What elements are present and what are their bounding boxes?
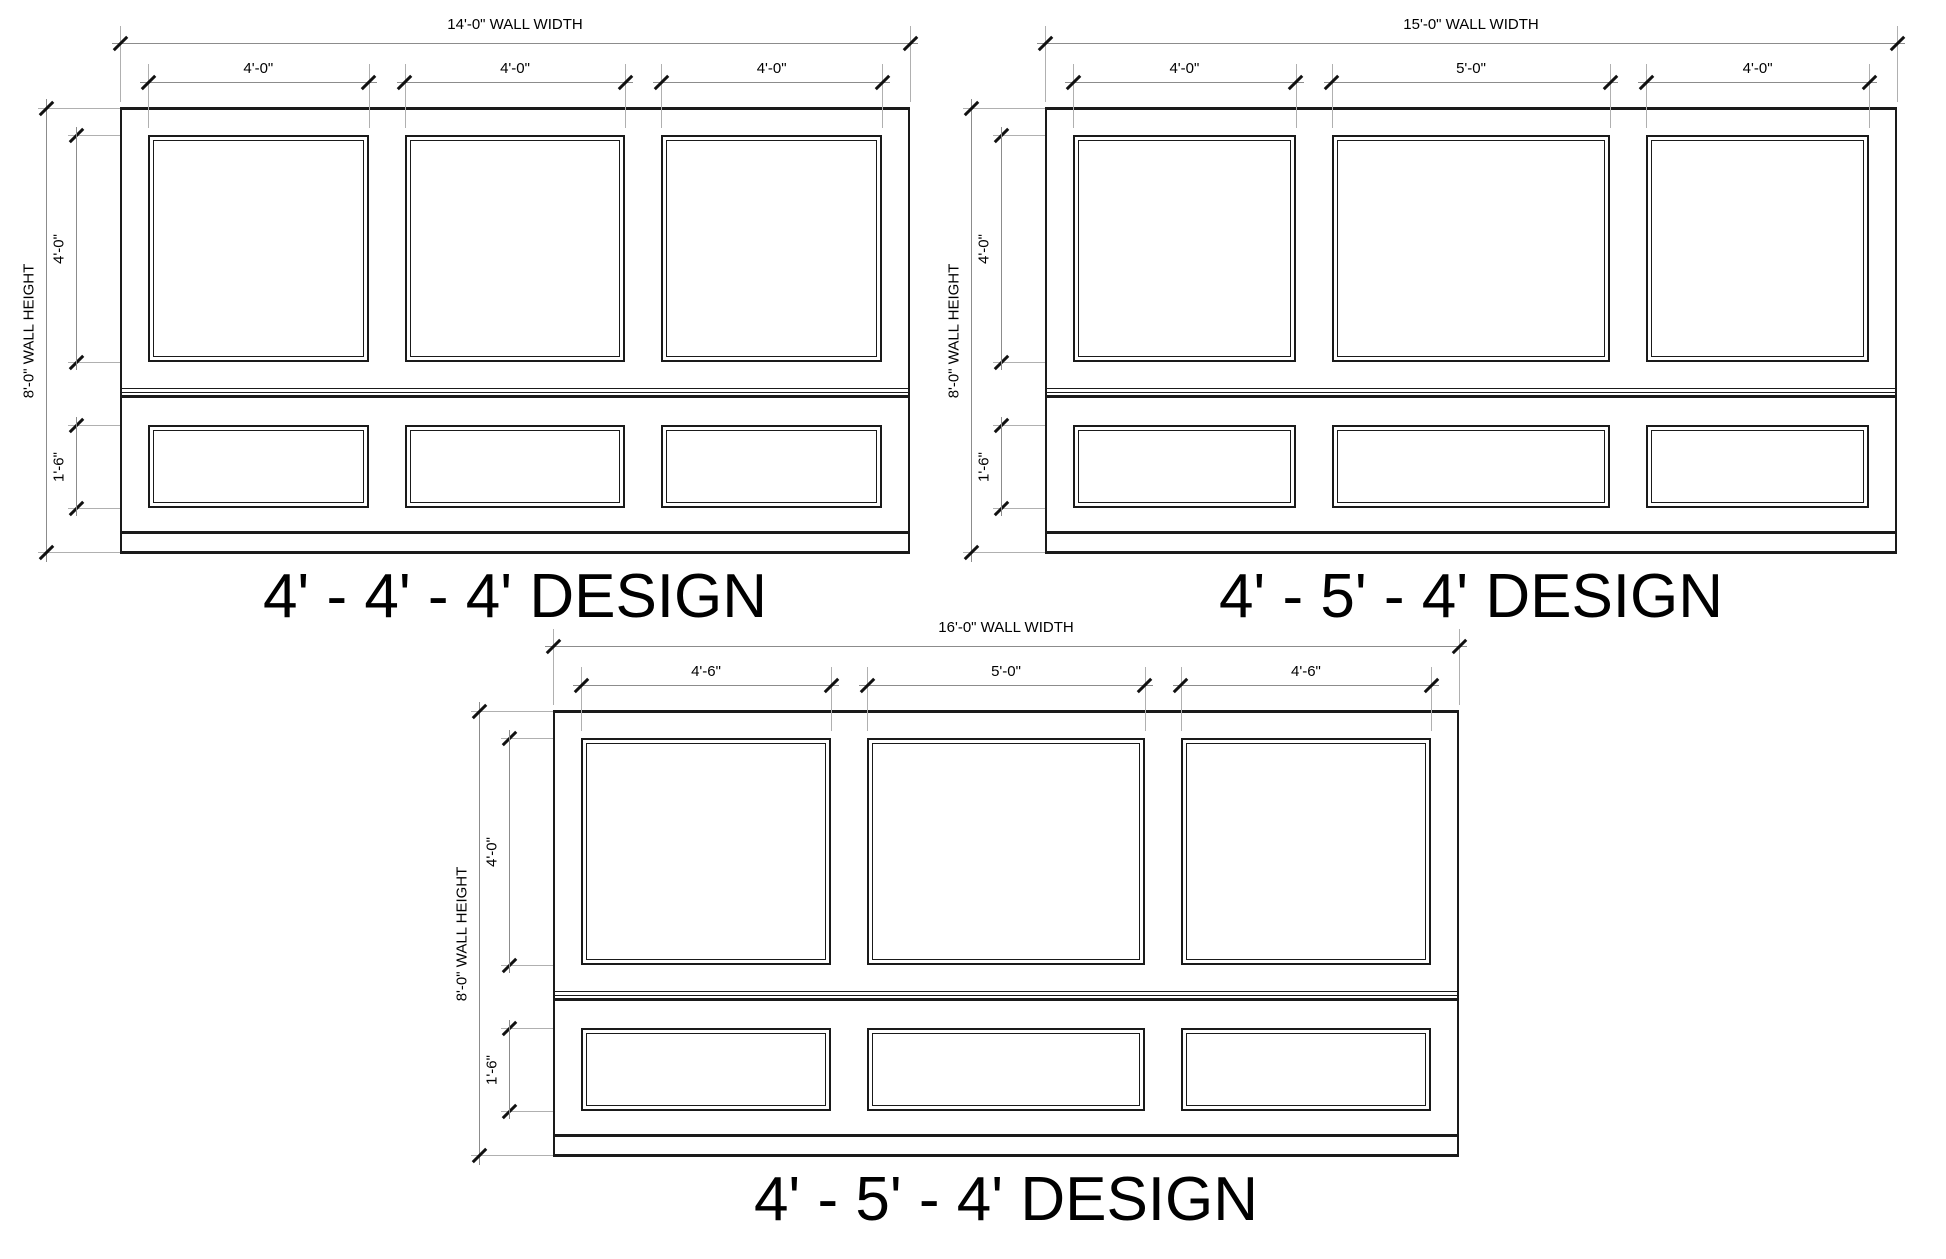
panel-dim-extension-line bbox=[148, 64, 149, 128]
upper-panel-1 bbox=[1073, 135, 1296, 362]
lower-panel-inner-frame bbox=[586, 1033, 826, 1106]
wall-height-dim-label: 8'-0" WALL HEIGHT bbox=[22, 263, 37, 398]
wall-height-dim-label: 8'-0" WALL HEIGHT bbox=[455, 866, 470, 1001]
lower-panel-height-dim-label: 1'-6" bbox=[52, 452, 67, 482]
wall-width-dim-label: 16'-0" WALL WIDTH bbox=[938, 619, 1073, 636]
lower-panel-1 bbox=[1073, 425, 1296, 508]
overall-dim-extension-line bbox=[1459, 629, 1460, 705]
overall-dim-extension-line bbox=[1897, 26, 1898, 102]
upper-panel-1 bbox=[148, 135, 369, 362]
wall-height-extension-line bbox=[963, 552, 1045, 553]
panel-width-dim-line bbox=[140, 82, 377, 83]
chair-rail-line bbox=[1047, 395, 1895, 398]
lower-panel-3 bbox=[661, 425, 882, 508]
panel-dim-extension-line bbox=[1646, 64, 1647, 128]
lower-panel-2 bbox=[405, 425, 626, 508]
panel-width-dim-label: 4'-0" bbox=[1169, 60, 1199, 77]
upper-panel-2 bbox=[1332, 135, 1610, 362]
upper-panel-inner-frame bbox=[1337, 140, 1605, 357]
baseboard-cap-line bbox=[555, 1134, 1457, 1137]
chair-rail-line bbox=[1047, 392, 1895, 393]
panel-dim-extension-line bbox=[867, 667, 868, 731]
overall-dim-extension-line bbox=[1045, 26, 1046, 102]
panel-dim-extension-line bbox=[1073, 64, 1074, 128]
lower-panel-height-dim-line bbox=[1001, 417, 1002, 516]
panel-dim-extension-line bbox=[581, 667, 582, 731]
upper-panel-2 bbox=[867, 738, 1145, 965]
panel-width-dim-label: 4'-0" bbox=[243, 60, 273, 77]
lower-panel-3 bbox=[1646, 425, 1869, 508]
panel-dim-extension-line bbox=[1181, 667, 1182, 731]
panel-dim-extension-line bbox=[1869, 64, 1870, 128]
overall-dim-extension-line bbox=[553, 629, 554, 705]
upper-panel-inner-frame bbox=[872, 743, 1140, 960]
upper-panel-3 bbox=[1646, 135, 1869, 362]
lower-panel-inner-frame bbox=[1186, 1033, 1426, 1106]
upper-panel-inner-frame bbox=[153, 140, 364, 357]
overall-dim-extension-line bbox=[910, 26, 911, 102]
upper-panel-3 bbox=[661, 135, 882, 362]
lower-panel-2 bbox=[867, 1028, 1145, 1111]
wall-height-dim-line bbox=[971, 99, 972, 562]
panel-width-dim-label: 4'-0" bbox=[1743, 60, 1773, 77]
panel-width-dim-line bbox=[859, 685, 1153, 686]
panel-width-dim-label: 4'-6" bbox=[1291, 663, 1321, 680]
panel-width-dim-label: 4'-0" bbox=[500, 60, 530, 77]
wall-width-dim-line bbox=[545, 646, 1467, 647]
upper-panel-2 bbox=[405, 135, 626, 362]
panel-width-dim-line bbox=[397, 82, 634, 83]
lower-panel-inner-frame bbox=[1651, 430, 1864, 503]
upper-panel-inner-frame bbox=[410, 140, 621, 357]
lower-panel-height-dim-line bbox=[76, 417, 77, 516]
lower-panel-inner-frame bbox=[1078, 430, 1291, 503]
lower-panel-height-dim-label: 1'-6" bbox=[977, 452, 992, 482]
wall-height-dim-line bbox=[479, 702, 480, 1165]
lower-panel-inner-frame bbox=[153, 430, 364, 503]
wall-width-dim-line bbox=[1037, 43, 1905, 44]
panel-dim-extension-line bbox=[1610, 64, 1611, 128]
panel-dim-extension-line bbox=[369, 64, 370, 128]
upper-panel-height-dim-label: 4'-0" bbox=[485, 837, 500, 867]
baseboard-cap-line bbox=[1047, 531, 1895, 534]
drawing-title: 4' - 5' - 4' DESIGN bbox=[754, 1169, 1258, 1231]
lower-panel-3 bbox=[1181, 1028, 1431, 1111]
panel-dim-extension-line bbox=[882, 64, 883, 128]
panel-dim-extension-line bbox=[1296, 64, 1297, 128]
upper-panel-inner-frame bbox=[1651, 140, 1864, 357]
upper-panel-1 bbox=[581, 738, 831, 965]
wall-height-extension-line bbox=[471, 711, 553, 712]
upper-panel-height-dim-label: 4'-0" bbox=[52, 234, 67, 264]
wall-height-extension-line bbox=[38, 552, 120, 553]
baseboard-cap-line bbox=[122, 531, 908, 534]
upper-panel-height-dim-label: 4'-0" bbox=[977, 234, 992, 264]
upper-panel-height-dim-line bbox=[509, 730, 510, 973]
panel-width-dim-label: 5'-0" bbox=[991, 663, 1021, 680]
lower-panel-inner-frame bbox=[410, 430, 621, 503]
wall-height-extension-line bbox=[471, 1155, 553, 1156]
panel-width-dim-line bbox=[1173, 685, 1439, 686]
chair-rail-line bbox=[555, 998, 1457, 1001]
wainscoting-design-sheet: 4'-0"4'-0"4'-0"14'-0" WALL WIDTH8'-0" WA… bbox=[0, 0, 1946, 1259]
wall-height-dim-label: 8'-0" WALL HEIGHT bbox=[947, 263, 962, 398]
panel-width-dim-line bbox=[1638, 82, 1877, 83]
lower-panel-2 bbox=[1332, 425, 1610, 508]
drawing-title: 4' - 5' - 4' DESIGN bbox=[1219, 566, 1723, 628]
panel-dim-extension-line bbox=[831, 667, 832, 731]
chair-rail-line bbox=[122, 395, 908, 398]
upper-panel-inner-frame bbox=[586, 743, 826, 960]
panel-width-dim-label: 5'-0" bbox=[1456, 60, 1486, 77]
chair-rail-line bbox=[122, 388, 908, 389]
upper-panel-height-dim-line bbox=[1001, 127, 1002, 370]
chair-rail-line bbox=[1047, 388, 1895, 389]
panel-dim-extension-line bbox=[1431, 667, 1432, 731]
wall-height-dim-line bbox=[46, 99, 47, 562]
lower-panel-inner-frame bbox=[872, 1033, 1140, 1106]
panel-width-dim-line bbox=[1324, 82, 1618, 83]
wall-height-extension-line bbox=[963, 108, 1045, 109]
lower-panel-1 bbox=[581, 1028, 831, 1111]
upper-panel-height-dim-line bbox=[76, 127, 77, 370]
panel-width-dim-label: 4'-0" bbox=[757, 60, 787, 77]
panel-dim-extension-line bbox=[1332, 64, 1333, 128]
chair-rail-line bbox=[555, 995, 1457, 996]
panel-width-dim-line bbox=[573, 685, 839, 686]
lower-panel-height-dim-line bbox=[509, 1020, 510, 1119]
wall-height-extension-line bbox=[38, 108, 120, 109]
lower-panel-1 bbox=[148, 425, 369, 508]
wall-width-dim-label: 14'-0" WALL WIDTH bbox=[447, 16, 582, 33]
lower-panel-inner-frame bbox=[666, 430, 877, 503]
chair-rail-line bbox=[122, 392, 908, 393]
panel-dim-extension-line bbox=[1145, 667, 1146, 731]
panel-dim-extension-line bbox=[625, 64, 626, 128]
wall-width-dim-label: 15'-0" WALL WIDTH bbox=[1403, 16, 1538, 33]
wall-width-dim-line bbox=[112, 43, 918, 44]
drawing-title: 4' - 4' - 4' DESIGN bbox=[263, 566, 767, 628]
overall-dim-extension-line bbox=[120, 26, 121, 102]
upper-panel-inner-frame bbox=[666, 140, 877, 357]
lower-panel-inner-frame bbox=[1337, 430, 1605, 503]
panel-width-dim-line bbox=[653, 82, 890, 83]
upper-panel-inner-frame bbox=[1186, 743, 1426, 960]
panel-dim-extension-line bbox=[405, 64, 406, 128]
lower-panel-height-dim-label: 1'-6" bbox=[485, 1055, 500, 1085]
upper-panel-inner-frame bbox=[1078, 140, 1291, 357]
upper-panel-3 bbox=[1181, 738, 1431, 965]
panel-width-dim-label: 4'-6" bbox=[691, 663, 721, 680]
chair-rail-line bbox=[555, 991, 1457, 992]
panel-dim-extension-line bbox=[661, 64, 662, 128]
panel-width-dim-line bbox=[1065, 82, 1304, 83]
